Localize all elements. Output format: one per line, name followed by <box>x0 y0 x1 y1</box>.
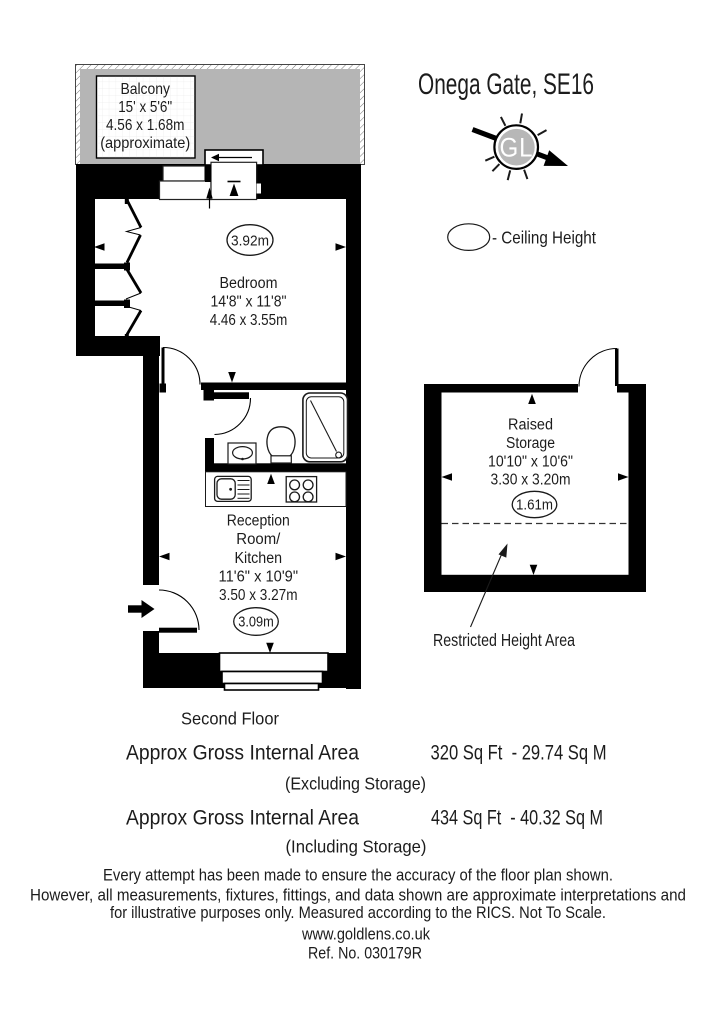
svg-text:434 Sq Ft - 40.32 Sq M: 434 Sq Ft - 40.32 Sq M <box>431 807 603 830</box>
svg-text:320 Sq Ft - 29.74 Sq M: 320 Sq Ft - 29.74 Sq M <box>431 742 607 765</box>
svg-text:(Including Storage): (Including Storage) <box>286 837 427 857</box>
svg-text:Reception: Reception <box>227 513 290 530</box>
svg-text:Bedroom: Bedroom <box>220 275 278 292</box>
svg-text:for illustrative purposes only: for illustrative purposes only. Measured… <box>110 904 606 922</box>
svg-text:Storage: Storage <box>506 435 555 452</box>
svg-text:Every attempt has been made to: Every attempt has been made to ensure th… <box>103 867 613 885</box>
svg-text:11'6" x 10'9": 11'6" x 10'9" <box>219 568 299 585</box>
svg-text:- Ceiling Height: - Ceiling Height <box>492 228 596 248</box>
svg-text:Kitchen: Kitchen <box>235 550 283 567</box>
svg-text:Ref. No. 030179R: Ref. No. 030179R <box>308 945 422 963</box>
svg-text:3.30 x 3.20m: 3.30 x 3.20m <box>491 472 571 489</box>
svg-text:3.92m: 3.92m <box>231 233 269 250</box>
svg-text:Restricted Height Area: Restricted Height Area <box>433 630 575 650</box>
svg-text:GL: GL <box>500 132 534 162</box>
svg-text:Approx Gross Internal Area: Approx Gross Internal Area <box>126 741 359 765</box>
svg-text:4.56 x 1.68m: 4.56 x 1.68m <box>106 117 185 134</box>
svg-text:(Excluding Storage): (Excluding Storage) <box>285 774 426 794</box>
svg-text:Second Floor: Second Floor <box>181 708 279 728</box>
svg-text:Raised: Raised <box>508 417 553 434</box>
svg-text:Balcony: Balcony <box>120 81 170 98</box>
svg-text:Room/: Room/ <box>236 531 281 548</box>
svg-text:1.61m: 1.61m <box>516 498 553 514</box>
svg-text:(approximate): (approximate) <box>100 135 190 152</box>
svg-text:4.46 x 3.55m: 4.46 x 3.55m <box>210 312 288 329</box>
svg-text:www.goldlens.co.uk: www.goldlens.co.uk <box>301 926 431 944</box>
svg-text:3.09m: 3.09m <box>238 615 274 631</box>
svg-text:Onega Gate, SE16: Onega Gate, SE16 <box>418 68 594 101</box>
svg-text:15' x 5'6": 15' x 5'6" <box>118 99 172 116</box>
svg-text:10'10" x 10'6": 10'10" x 10'6" <box>488 453 573 470</box>
svg-text:However, all measurements, fix: However, all measurements, fixtures, fit… <box>30 887 686 905</box>
svg-text:3.50 x 3.27m: 3.50 x 3.27m <box>219 587 298 604</box>
svg-text:Approx Gross Internal Area: Approx Gross Internal Area <box>126 806 359 830</box>
svg-text:14'8" x 11'8": 14'8" x 11'8" <box>211 294 287 311</box>
